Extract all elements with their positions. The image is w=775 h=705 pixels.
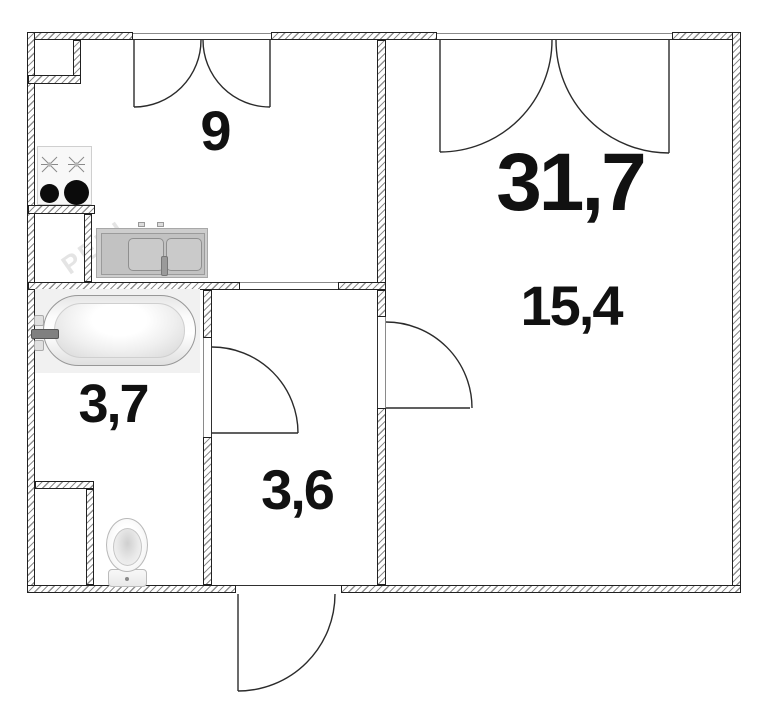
kitchen-balcony-door-arc-right [203, 40, 270, 107]
entrance-door-arc [238, 594, 335, 691]
room-label-bathroom: 3,7 [78, 377, 147, 431]
room-label-living: 15,4 [521, 278, 622, 334]
door-swings-layer [0, 0, 775, 705]
living-balcony-door-arc-left [440, 40, 552, 152]
living-door-arc [386, 322, 472, 408]
kitchen-balcony-door-arc-left [134, 40, 201, 107]
room-label-living-total: 31,7 [496, 142, 644, 224]
bathroom-door-arc [212, 347, 298, 433]
room-label-hallway: 3,6 [261, 462, 333, 518]
room-label-kitchen: 9 [200, 103, 229, 159]
floor-plan: PERI [0, 0, 775, 705]
